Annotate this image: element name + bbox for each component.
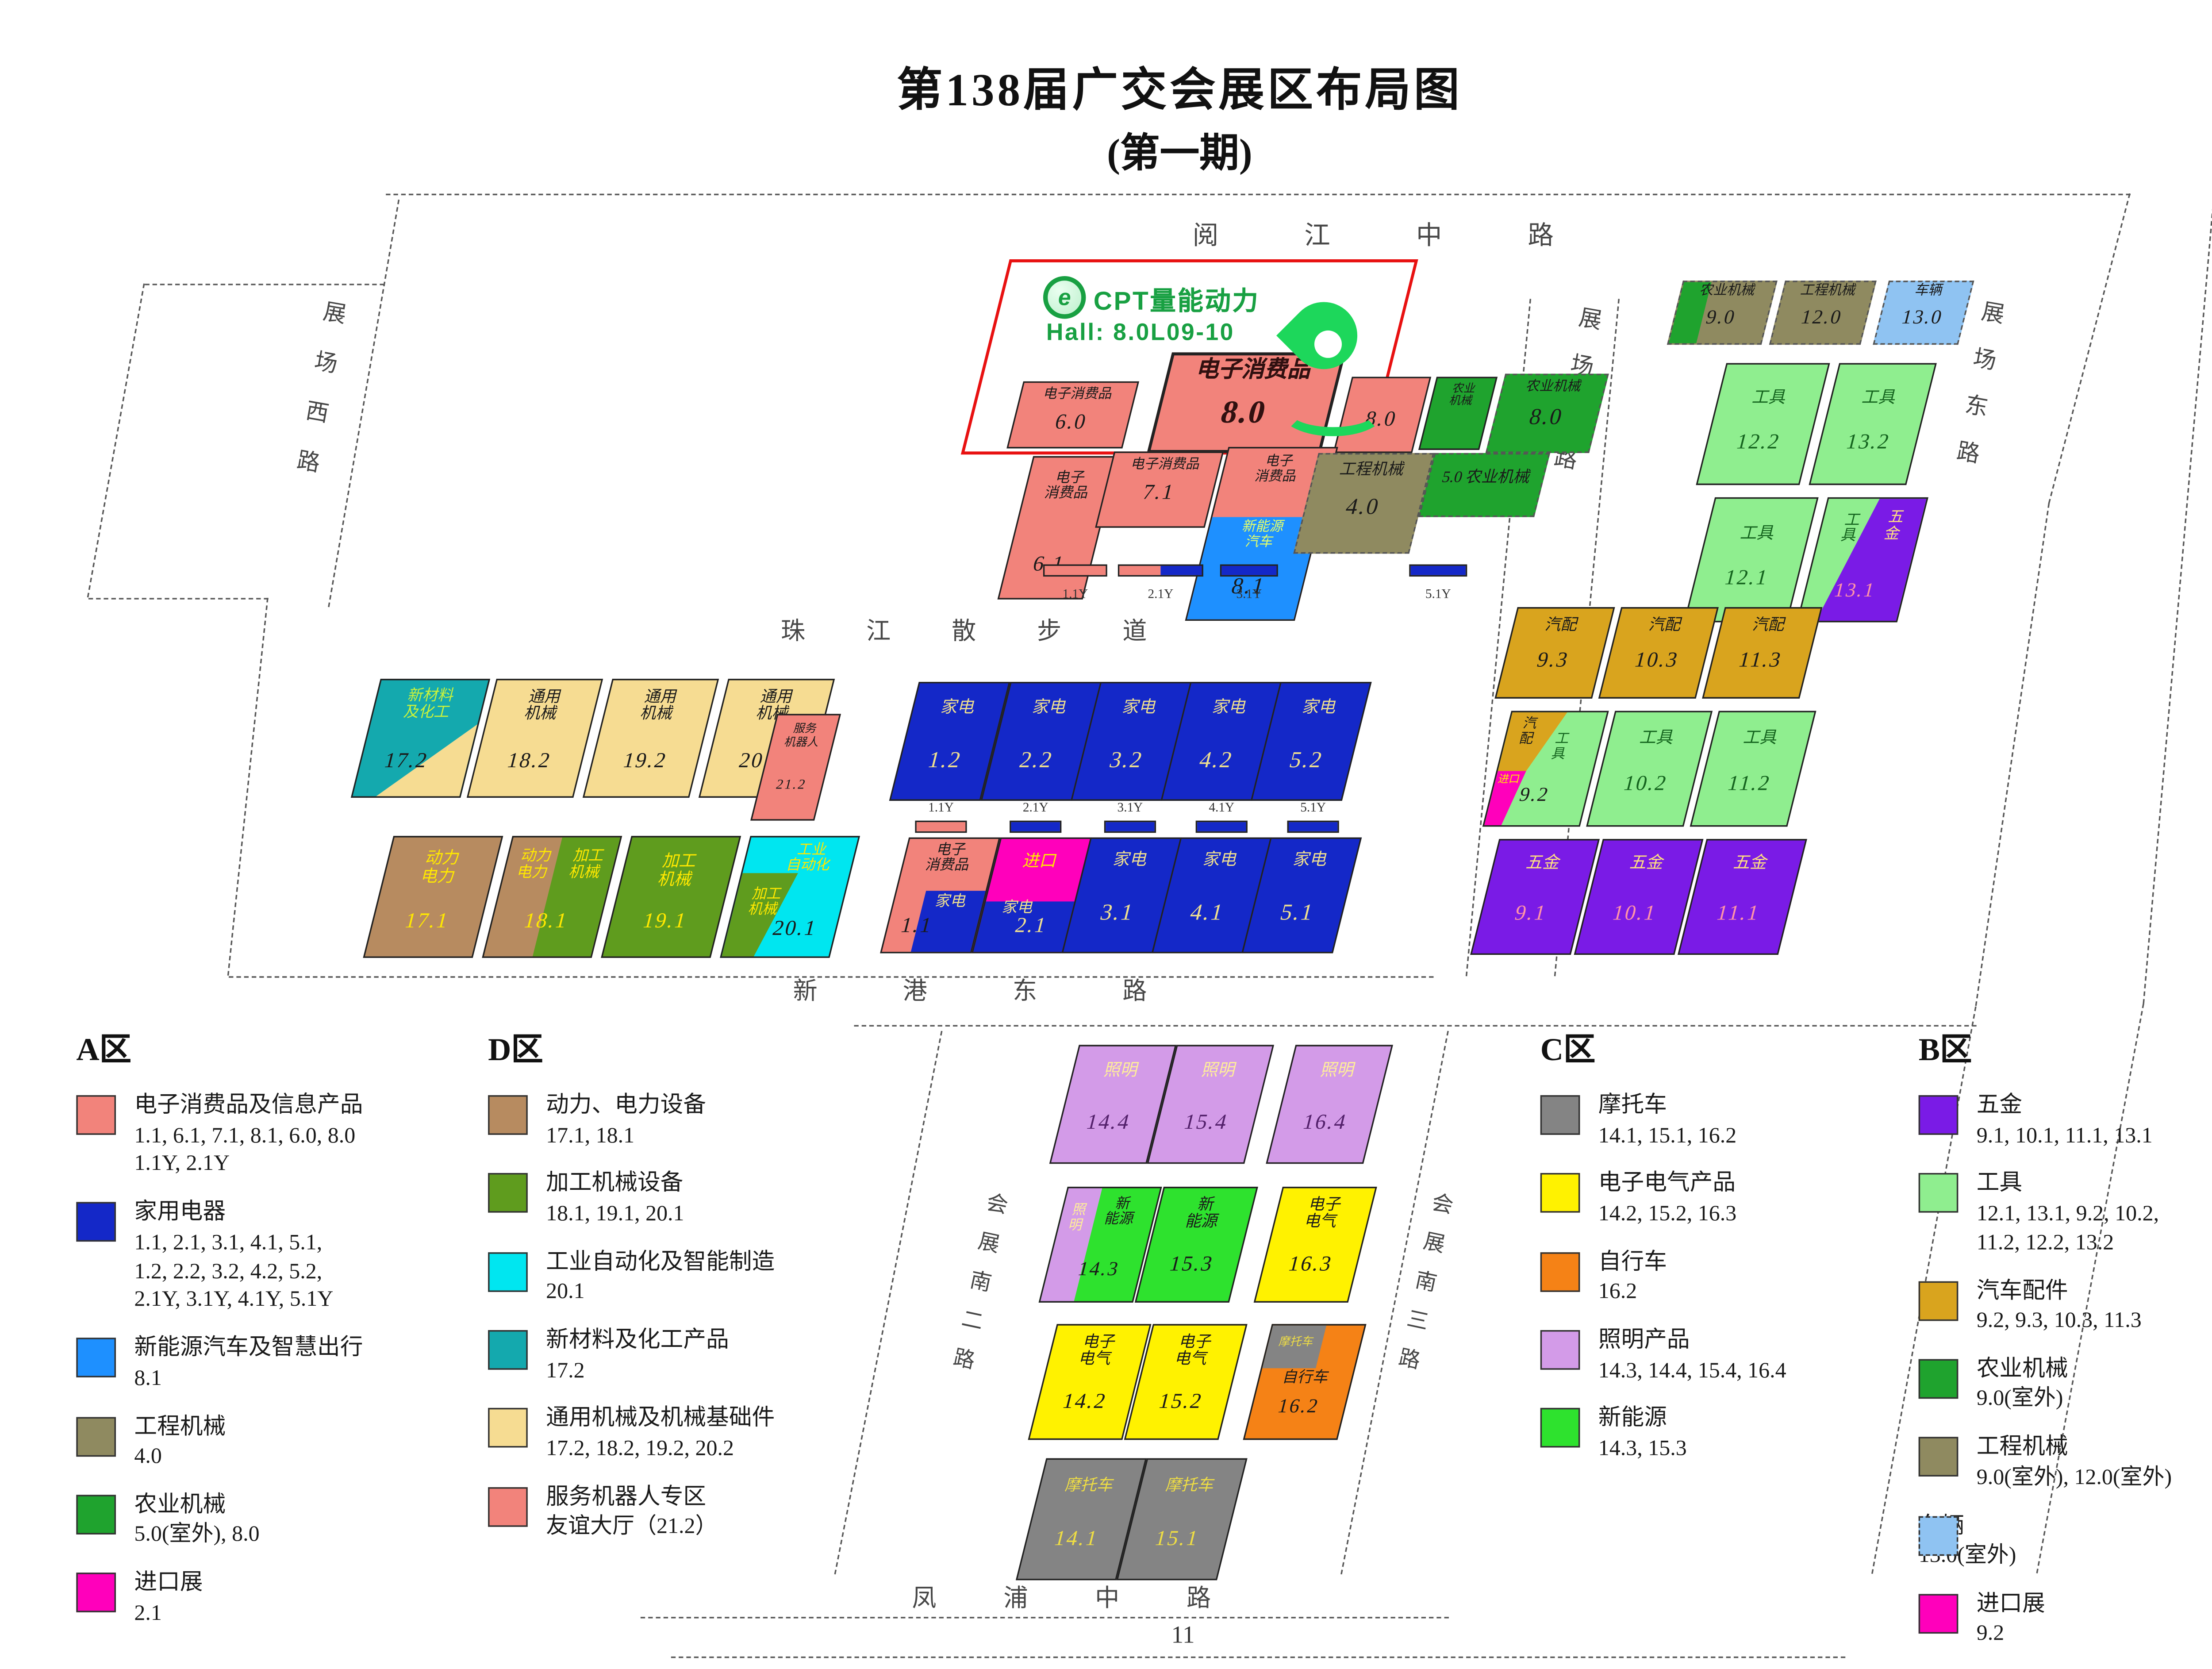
c-16-4-number: 16.4 <box>1275 1111 1375 1134</box>
road-label: 新 港 东 路 <box>793 970 1187 1007</box>
legend-item-halls: 4.0 <box>134 1443 226 1472</box>
legend-item: 自行车16.2 <box>1540 1249 1937 1307</box>
b-12-0-label: 工程机械 <box>1782 283 1874 298</box>
legend-item: 车辆13.0(室外) <box>1919 1512 2212 1571</box>
a-4-1-number: 4.1 <box>1160 902 1254 927</box>
d-18-1: 动力电力加工机械18.1 <box>482 836 622 958</box>
legend-swatch <box>76 1095 116 1135</box>
mini-hall-bar <box>1287 821 1339 833</box>
mini-hall-bar-segment <box>1119 566 1160 575</box>
hall-booth-label: Hall: 8.0L09-10 <box>1046 320 1235 348</box>
d-19-2: 通用机械19.2 <box>583 679 719 798</box>
legend-text: 自行车16.2 <box>1598 1249 1667 1307</box>
mini-hall-label: 5.1Y <box>1300 799 1326 814</box>
legend-text: 工程机械4.0 <box>134 1413 226 1472</box>
a-4-2-label: 家电 <box>1183 701 1275 719</box>
road-dash-line <box>386 194 2131 195</box>
legend-text: 服务机器人专区友谊大厅（21.2） <box>546 1484 717 1542</box>
road-dash-line <box>88 598 269 599</box>
d-17-1: 动力电力17.1 <box>363 836 503 958</box>
legend-text: 工业自动化及智能制造20.1 <box>546 1249 775 1307</box>
legend-item: 农业机械9.0(室外) <box>1919 1356 2212 1414</box>
road-dash-line <box>1975 503 2050 1007</box>
road-label: 阅 江 中 路 <box>1193 214 1594 252</box>
legend-item-name: 自行车 <box>1598 1249 1667 1278</box>
b-10-2-label: 工具 <box>1607 731 1706 749</box>
legend-item-halls: 8.1 <box>134 1365 363 1393</box>
legend-text: 新材料及化工产品17.2 <box>546 1327 729 1385</box>
hall-agri-8-0-number: 8.0 <box>1493 406 1599 431</box>
legend-item-halls: 2.1Y, 3.1Y, 4.1Y, 5.1Y <box>134 1286 333 1315</box>
b-10-1-label: 五金 <box>1595 856 1697 874</box>
c-14-3-number: 14.3 <box>1050 1258 1147 1280</box>
b-10-3-number: 10.3 <box>1606 649 1707 672</box>
c-14-1-label: 摩托车 <box>1038 1479 1140 1496</box>
legend-swatch <box>1919 1281 1959 1320</box>
c-14-4-number: 14.4 <box>1058 1111 1159 1134</box>
d-20-1-label: 工业自动化 <box>753 843 868 875</box>
legend-item-name: 动力、电力设备 <box>546 1092 706 1122</box>
legend-item-name: 摩托车 <box>1598 1092 1736 1122</box>
legend-title: A区 <box>76 1025 472 1071</box>
b-9-1-label: 五金 <box>1492 856 1594 874</box>
legend-item: 摩托车14.1, 15.1, 16.2 <box>1540 1092 1937 1150</box>
c-14-2-label: 电子电气 <box>1047 1334 1147 1369</box>
road-dash-line <box>145 284 384 285</box>
a-3-1-label: 家电 <box>1083 853 1176 871</box>
a-2-1-number: 2.1 <box>984 915 1078 938</box>
mini-hall-label: 2.1Y <box>1023 799 1048 814</box>
legend-item-halls: 17.1, 18.1 <box>546 1122 706 1150</box>
legend-text: 农业机械5.0(室外), 8.0 <box>134 1492 259 1550</box>
legend-title: B区 <box>1919 1025 2212 1071</box>
legend-item-halls: 9.1, 10.1, 11.1, 13.1 <box>1977 1122 2153 1150</box>
mini-hall-bar <box>1104 821 1156 833</box>
b-9-0-number: 9.0 <box>1673 307 1770 328</box>
road-dash-line <box>227 598 269 976</box>
legend-item-halls: 9.0(室外), 12.0(室外) <box>1977 1464 2172 1492</box>
legend-item: 工程机械4.0 <box>76 1413 472 1472</box>
legend-text: 动力、电力设备17.1, 18.1 <box>546 1092 706 1150</box>
c-16-2: 摩托车自行车16.2 <box>1243 1324 1367 1440</box>
legend-item-halls: 14.1, 15.1, 16.2 <box>1598 1122 1736 1150</box>
legend-swatch <box>1919 1173 1959 1213</box>
b-11-1-number: 11.1 <box>1686 904 1790 927</box>
legend-item: 工具12.1, 13.1, 9.2, 10.2,11.2, 12.2, 13.2 <box>1919 1170 2212 1258</box>
legend-item: 电子电气产品14.2, 15.2, 16.3 <box>1540 1170 1937 1229</box>
legend-swatch <box>1540 1252 1580 1292</box>
legend-item-name: 五金 <box>1977 1092 2153 1122</box>
c-14-2-number: 14.2 <box>1036 1391 1133 1414</box>
canton-fair-layout-map: 第138届广交会展区布局图 (第一期) 阅 江 中 路珠 江 散 步 道新 港 … <box>0 0 2212 1667</box>
legend-swatch <box>1919 1095 1959 1135</box>
d-17-2: 新材料及化工17.2 <box>351 679 490 798</box>
mini-hall-bar-segment <box>1106 822 1154 831</box>
a-5-2-number: 5.2 <box>1259 748 1354 773</box>
b-13-2: 工具13.2 <box>1809 363 1936 485</box>
mini-hall-bar-segment <box>1045 566 1106 575</box>
b-11-1-label: 五金 <box>1699 856 1801 874</box>
d-19-2-number: 19.2 <box>590 750 699 773</box>
legend-swatch <box>488 1487 528 1527</box>
legend-item: 农业机械5.0(室外), 8.0 <box>76 1492 472 1550</box>
legend-item-halls: 17.2, 18.2, 19.2, 20.2 <box>546 1435 775 1464</box>
legend-item-name: 照明产品 <box>1598 1327 1786 1357</box>
legend-item-name: 工程机械 <box>134 1413 226 1443</box>
page-number: 11 <box>1171 1623 1195 1650</box>
d-17-1-number: 17.1 <box>370 911 483 934</box>
legend-item-name: 电子电气产品 <box>1598 1170 1736 1200</box>
legend-item: 汽车配件9.2, 9.3, 10.3, 11.3 <box>1919 1277 2212 1336</box>
legend-item: 新材料及化工产品17.2 <box>488 1327 884 1385</box>
legend-item-name: 工具 <box>1977 1170 2159 1200</box>
pin-shadow-arc <box>1281 388 1385 436</box>
b-11-2-number: 11.2 <box>1699 773 1799 796</box>
legend-item-halls: 友谊大厅（21.2） <box>546 1513 717 1542</box>
legend-item-halls: 16.2 <box>1598 1278 1667 1307</box>
c-16-3-number: 16.3 <box>1262 1254 1359 1277</box>
legend-text: 进口展9.2 <box>1977 1591 2045 1649</box>
road-dash-line <box>671 1657 1845 1658</box>
c-15-1-number: 15.1 <box>1125 1529 1229 1552</box>
c-15-4-number: 15.4 <box>1156 1111 1256 1134</box>
b-11-3-number: 11.3 <box>1710 649 1810 672</box>
b-12-1: 工具12.1 <box>1684 497 1819 623</box>
b-12-1-number: 12.1 <box>1693 567 1800 590</box>
d-20-1: 工业自动化加工机械20.1 <box>720 836 860 958</box>
legend-text: 五金9.1, 10.1, 11.1, 13.1 <box>1977 1092 2153 1150</box>
legend-swatch <box>1540 1173 1580 1213</box>
b-11-2: 工具11.2 <box>1690 711 1816 827</box>
road-dash-line <box>328 200 399 607</box>
legend-item-halls: 9.2, 9.3, 10.3, 11.3 <box>1977 1307 2142 1336</box>
legend-item: 照明产品14.3, 14.4, 15.4, 16.4 <box>1540 1327 1937 1385</box>
c-16-3-label: 电子电气 <box>1273 1197 1373 1232</box>
legend-item: 进口展9.2 <box>1919 1591 2212 1649</box>
d-21-2-number: 21.2 <box>759 777 823 792</box>
mini-hall-label: 1.1Y <box>928 799 954 814</box>
b-13-0-number: 13.0 <box>1878 307 1966 328</box>
a-5-1-label: 家电 <box>1263 853 1356 871</box>
legend-text: 加工机械设备18.1, 19.1, 20.1 <box>546 1170 684 1229</box>
mini-hall-bar <box>1409 565 1467 577</box>
hall-4-0: 工程机械4.0 <box>1293 453 1434 554</box>
legend-item-name: 工程机械 <box>1977 1434 2172 1464</box>
b-10-3-label: 汽配 <box>1616 617 1714 635</box>
c-15-2-label: 电子电气 <box>1143 1334 1243 1369</box>
hall-5-0: 5.0 农业机械 <box>1418 453 1550 517</box>
b-9-3: 汽配9.3 <box>1494 607 1615 699</box>
hall-agri-small-label: 农业机械 <box>1431 382 1495 407</box>
legend-item-name: 汽车配件 <box>1977 1277 2142 1307</box>
b-13-0: 车辆13.0 <box>1873 281 1974 345</box>
d-18-1-number: 18.1 <box>489 911 602 934</box>
b-13-2-label: 工具 <box>1829 391 1928 409</box>
legend-item: 加工机械设备18.1, 19.1, 20.1 <box>488 1170 884 1229</box>
hall-7-1-label: 电子消费品 <box>1110 458 1221 473</box>
mini-hall-bar-segment <box>1221 566 1276 575</box>
a-1-2-number: 1.2 <box>898 748 992 773</box>
a-5-1-number: 5.1 <box>1249 902 1344 927</box>
c-15-3-number: 15.3 <box>1143 1254 1240 1277</box>
legend-title: D区 <box>488 1025 884 1071</box>
road-dash-line <box>87 284 145 598</box>
legend-swatch <box>488 1252 528 1292</box>
a-1-1-label: 电子消费品 <box>901 843 998 875</box>
legend-item: 五金9.1, 10.1, 11.1, 13.1 <box>1919 1092 2212 1150</box>
legend-item: 工程机械9.0(室外), 12.0(室外) <box>1919 1434 2212 1492</box>
b-9-2-number: 9.2 <box>1484 785 1584 806</box>
legend-text: 进口展2.1 <box>134 1570 203 1628</box>
pin-head <box>1276 288 1371 383</box>
location-pin-icon <box>1281 299 1373 452</box>
legend-item-halls: 17.2 <box>546 1357 729 1385</box>
legend-text: 新能源14.3, 15.3 <box>1598 1405 1687 1464</box>
legend-item-halls: 11.2, 12.2, 13.2 <box>1977 1229 2159 1258</box>
mini-hall-bar-segment <box>1160 566 1202 575</box>
hall-agri-small: 农业机械 <box>1418 377 1498 450</box>
d-20-1-number: 20.1 <box>738 918 851 941</box>
legend-item: 工业自动化及智能制造20.1 <box>488 1249 884 1307</box>
a-4-2-number: 4.2 <box>1169 748 1264 773</box>
b-10-2-number: 10.2 <box>1595 773 1696 796</box>
legend-item: 家用电器1.1, 2.1, 3.1, 4.1, 5.1,1.2, 2.2, 3.… <box>76 1199 472 1315</box>
legend-item-name: 新能源 <box>1598 1405 1687 1435</box>
mini-hall-bar <box>915 821 967 833</box>
legend-item-name: 进口展 <box>1977 1591 2045 1620</box>
legend-D区: D区动力、电力设备17.1, 18.1加工机械设备18.1, 19.1, 20.… <box>488 1025 884 1562</box>
legend-item-name: 进口展 <box>134 1570 203 1600</box>
brand-logo-icon: e <box>1043 276 1086 319</box>
legend-swatch <box>1919 1515 1959 1555</box>
c-14-1-number: 14.1 <box>1024 1529 1128 1552</box>
legend-swatch <box>488 1408 528 1448</box>
legend-swatch <box>76 1202 116 1242</box>
legend-item-halls: 14.2, 15.2, 16.3 <box>1598 1200 1736 1229</box>
pin-hole <box>1309 325 1348 364</box>
legend-item-halls: 18.1, 19.1, 20.1 <box>546 1200 684 1229</box>
legend-swatch <box>488 1095 528 1135</box>
hall-4-0-number: 4.0 <box>1303 496 1422 520</box>
road-dash-line <box>641 1617 1449 1618</box>
legend-swatch <box>76 1416 116 1456</box>
road-label: 珠 江 散 步 道 <box>781 610 1174 647</box>
c-16-2-label: 摩托车 <box>1249 1337 1344 1349</box>
d-17-2-number: 17.2 <box>350 750 462 773</box>
b-10-3: 汽配10.3 <box>1598 607 1719 699</box>
c-16-2-number: 16.2 <box>1250 1396 1347 1417</box>
legend-swatch <box>1919 1594 1959 1634</box>
mini-hall-label: 1.1Y <box>1062 586 1088 601</box>
legend-item-halls: 2.1 <box>134 1600 203 1628</box>
legend-swatch <box>1919 1359 1959 1399</box>
legend-swatch <box>488 1173 528 1213</box>
mini-hall-bar <box>1220 565 1278 577</box>
mini-hall-label: 3.1Y <box>1118 799 1143 814</box>
hall-agri-8-0-label: 农业机械 <box>1502 379 1606 394</box>
d-17-2-label: 新材料及化工 <box>371 689 486 722</box>
mini-hall-bar-segment <box>1011 822 1060 831</box>
hall-6-0-label: 电子消费品 <box>1019 388 1136 403</box>
b-13-1: 工具五金13.1 <box>1797 497 1928 623</box>
legend-text: 工具12.1, 13.1, 9.2, 10.2,11.2, 12.2, 13.2 <box>1977 1170 2159 1258</box>
legend-item-name: 通用机械及机械基础件 <box>546 1405 775 1435</box>
legend-item-name: 工业自动化及智能制造 <box>546 1249 775 1278</box>
legend-item-name: 家用电器 <box>134 1199 333 1229</box>
a-2-2-number: 2.2 <box>989 748 1084 773</box>
legend-text: 照明产品14.3, 14.4, 15.4, 16.4 <box>1598 1327 1786 1385</box>
legend-item-halls: 1.1, 2.1, 3.1, 4.1, 5.1, <box>134 1229 333 1258</box>
a-1-1-number: 1.1 <box>869 915 964 938</box>
legend-swatch <box>488 1330 528 1370</box>
c-15-4-label: 照明 <box>1169 1062 1268 1081</box>
legend-text: 电子电气产品14.2, 15.2, 16.3 <box>1598 1170 1736 1229</box>
b-13-2-number: 13.2 <box>1818 431 1918 454</box>
b-11-3-label: 汽配 <box>1720 617 1818 635</box>
legend-item: 新能源汽车及智慧出行8.1 <box>76 1335 472 1393</box>
c-16-3: 电子电气16.3 <box>1254 1187 1377 1303</box>
legend-C区: C区摩托车14.1, 15.1, 16.2电子电气产品14.2, 15.2, 1… <box>1540 1025 1937 1484</box>
legend-text: 新能源汽车及智慧出行8.1 <box>134 1335 363 1393</box>
d-20-1-label: 加工机械 <box>708 887 822 919</box>
legend-swatch <box>76 1573 116 1613</box>
legend-item-name: 新材料及化工产品 <box>546 1327 729 1357</box>
b-9-0: 农业机械9.0 <box>1667 281 1778 345</box>
b-9-2-label: 工具 <box>1509 733 1611 762</box>
a-1-2-label: 家电 <box>911 701 1004 719</box>
d-19-2-label: 通用机械 <box>603 689 715 724</box>
a-3-2-number: 3.2 <box>1079 748 1174 773</box>
legend-item-name: 农业机械 <box>1977 1356 2068 1385</box>
legend-B区: B区五金9.1, 10.1, 11.1, 13.1工具12.1, 13.1, 9… <box>1919 1025 2212 1669</box>
mini-hall-bar-segment <box>917 822 965 831</box>
mini-hall-label: 3.1Y <box>1236 586 1262 601</box>
b-12-2: 工具12.2 <box>1696 363 1830 485</box>
mini-hall-label: 5.1Y <box>1425 586 1451 601</box>
mini-hall-bar-segment <box>1289 822 1337 831</box>
legend-item-halls: 12.1, 13.1, 9.2, 10.2, <box>1977 1200 2159 1229</box>
legend-swatch <box>1919 1437 1959 1477</box>
d-18-2-number: 18.2 <box>474 750 584 773</box>
legend-item-halls: 1.2, 2.2, 3.2, 4.2, 5.2, <box>134 1258 333 1286</box>
legend-item: 电子消费品及信息产品1.1, 6.1, 7.1, 8.1, 6.0, 8.01.… <box>76 1092 472 1179</box>
legend-item-halls: 1.1Y, 2.1Y <box>134 1150 363 1179</box>
b-10-1-number: 10.1 <box>1582 904 1686 927</box>
mini-hall-bar <box>1118 565 1203 577</box>
legend-item-halls: 9.0(室外) <box>1977 1385 2068 1414</box>
legend-swatch <box>1540 1095 1580 1135</box>
legend-swatch <box>1540 1408 1580 1448</box>
a-5-2-label: 家电 <box>1272 701 1365 719</box>
legend-item-halls: 1.1, 6.1, 7.1, 8.1, 6.0, 8.0 <box>134 1122 363 1150</box>
c-16-4-label: 照明 <box>1288 1062 1387 1081</box>
legend-text: 电子消费品及信息产品1.1, 6.1, 7.1, 8.1, 6.0, 8.01.… <box>134 1092 363 1179</box>
b-12-0: 工程机械12.0 <box>1769 281 1877 345</box>
mini-hall-label: 2.1Y <box>1148 586 1173 601</box>
hall-7-1-number: 7.1 <box>1102 482 1214 505</box>
d-18-2: 通用机械18.2 <box>467 679 603 798</box>
legend-item-halls: 9.2 <box>1977 1620 2045 1649</box>
hall-6-0-number: 6.0 <box>1011 412 1130 435</box>
d-18-2-label: 通用机械 <box>487 689 599 724</box>
brand-logo: e CPT量能动力 <box>1043 276 1260 319</box>
hall-6-0: 电子消费品6.0 <box>1006 381 1139 449</box>
legend-text: 汽车配件9.2, 9.3, 10.3, 11.3 <box>1977 1277 2142 1336</box>
c-15-3-label: 新能源 <box>1154 1197 1254 1232</box>
legend-text: 工程机械9.0(室外), 12.0(室外) <box>1977 1434 2172 1492</box>
road-label: 展场西路 <box>285 298 351 502</box>
d-19-1-label: 加工机械 <box>619 854 735 890</box>
legend-item-halls: 14.3, 15.3 <box>1598 1435 1687 1464</box>
legend-item: 通用机械及机械基础件17.2, 18.2, 19.2, 20.2 <box>488 1405 884 1464</box>
d-21-2-label: 服务机器人 <box>770 724 837 749</box>
b-11-2-label: 工具 <box>1711 731 1810 749</box>
b-12-2-number: 12.2 <box>1705 431 1812 454</box>
b-9-0-label: 农业机械 <box>1680 283 1775 298</box>
road-dash-line <box>2048 193 2131 504</box>
b-12-1-label: 工具 <box>1705 526 1810 544</box>
b-13-1-label: 五金 <box>1841 511 1947 544</box>
b-12-2-label: 工具 <box>1717 391 1822 409</box>
legend-item-halls: 5.0(室外), 8.0 <box>134 1521 259 1550</box>
road-label: 会展南二路 <box>941 1189 1012 1389</box>
a-3-2-label: 家电 <box>1093 701 1186 719</box>
hall-agri-8-0: 农业机械8.0 <box>1486 374 1609 453</box>
c-16-2-label: 自行车 <box>1258 1371 1353 1387</box>
legend-item-halls: 14.3, 14.4, 15.4, 16.4 <box>1598 1357 1786 1385</box>
a-4-1-label: 家电 <box>1174 853 1267 871</box>
c-15-2-number: 15.2 <box>1132 1391 1229 1414</box>
legend-item-name: 新能源汽车及智慧出行 <box>134 1335 363 1365</box>
mini-hall-bar <box>1196 821 1248 833</box>
legend-item-name: 服务机器人专区 <box>546 1484 717 1513</box>
road-dash-line <box>2143 198 2212 1004</box>
hall-4-0-label: 工程机械 <box>1313 462 1430 480</box>
mini-hall-bar-segment <box>1411 566 1466 575</box>
legend-text: 摩托车14.1, 15.1, 16.2 <box>1598 1092 1736 1150</box>
hall-6-1-label: 电子消费品 <box>1023 472 1113 503</box>
legend-swatch <box>1540 1330 1580 1370</box>
c-15-1-label: 摩托车 <box>1139 1479 1240 1496</box>
legend-A区: A区电子消费品及信息产品1.1, 6.1, 7.1, 8.1, 6.0, 8.0… <box>76 1025 472 1649</box>
b-9-3-label: 汽配 <box>1512 617 1611 635</box>
hall-7-1: 电子消费品7.1 <box>1095 451 1224 527</box>
legend-item-halls: 20.1 <box>546 1278 775 1307</box>
a-2-2-label: 家电 <box>1002 701 1095 719</box>
legend-item-name: 农业机械 <box>134 1492 259 1521</box>
legend-text: 农业机械9.0(室外) <box>1977 1356 2068 1414</box>
mini-hall-label: 4.1Y <box>1209 799 1234 814</box>
legend-title: C区 <box>1540 1025 1937 1071</box>
legend-item: 新能源14.3, 15.3 <box>1540 1405 1937 1464</box>
mini-hall-bar-segment <box>1197 822 1246 831</box>
legend-swatch <box>76 1495 116 1534</box>
legend-item: 服务机器人专区友谊大厅（21.2） <box>488 1484 884 1542</box>
b-9-3-number: 9.3 <box>1503 649 1603 672</box>
legend-item: 进口展2.1 <box>76 1570 472 1628</box>
legend-item-name: 加工机械设备 <box>546 1170 684 1200</box>
legend-item: 动力、电力设备17.1, 18.1 <box>488 1092 884 1150</box>
b-12-0-number: 12.0 <box>1775 307 1869 328</box>
legend-item-name: 电子消费品及信息产品 <box>134 1092 363 1122</box>
brand-name: CPT量能动力 <box>1094 278 1260 316</box>
road-label: 凤 浦 中 路 <box>912 1577 1241 1614</box>
a-3-1-number: 3.1 <box>1070 902 1164 927</box>
legend-swatch <box>76 1338 116 1378</box>
mini-hall-bar <box>1010 821 1061 833</box>
b-9-1-number: 9.1 <box>1479 904 1582 927</box>
c-14-4-label: 照明 <box>1071 1062 1171 1081</box>
